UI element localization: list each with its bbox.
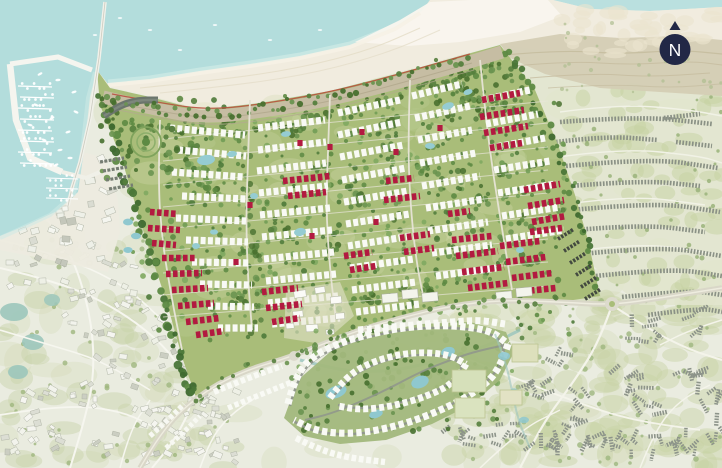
svg-text:N: N	[669, 40, 682, 60]
